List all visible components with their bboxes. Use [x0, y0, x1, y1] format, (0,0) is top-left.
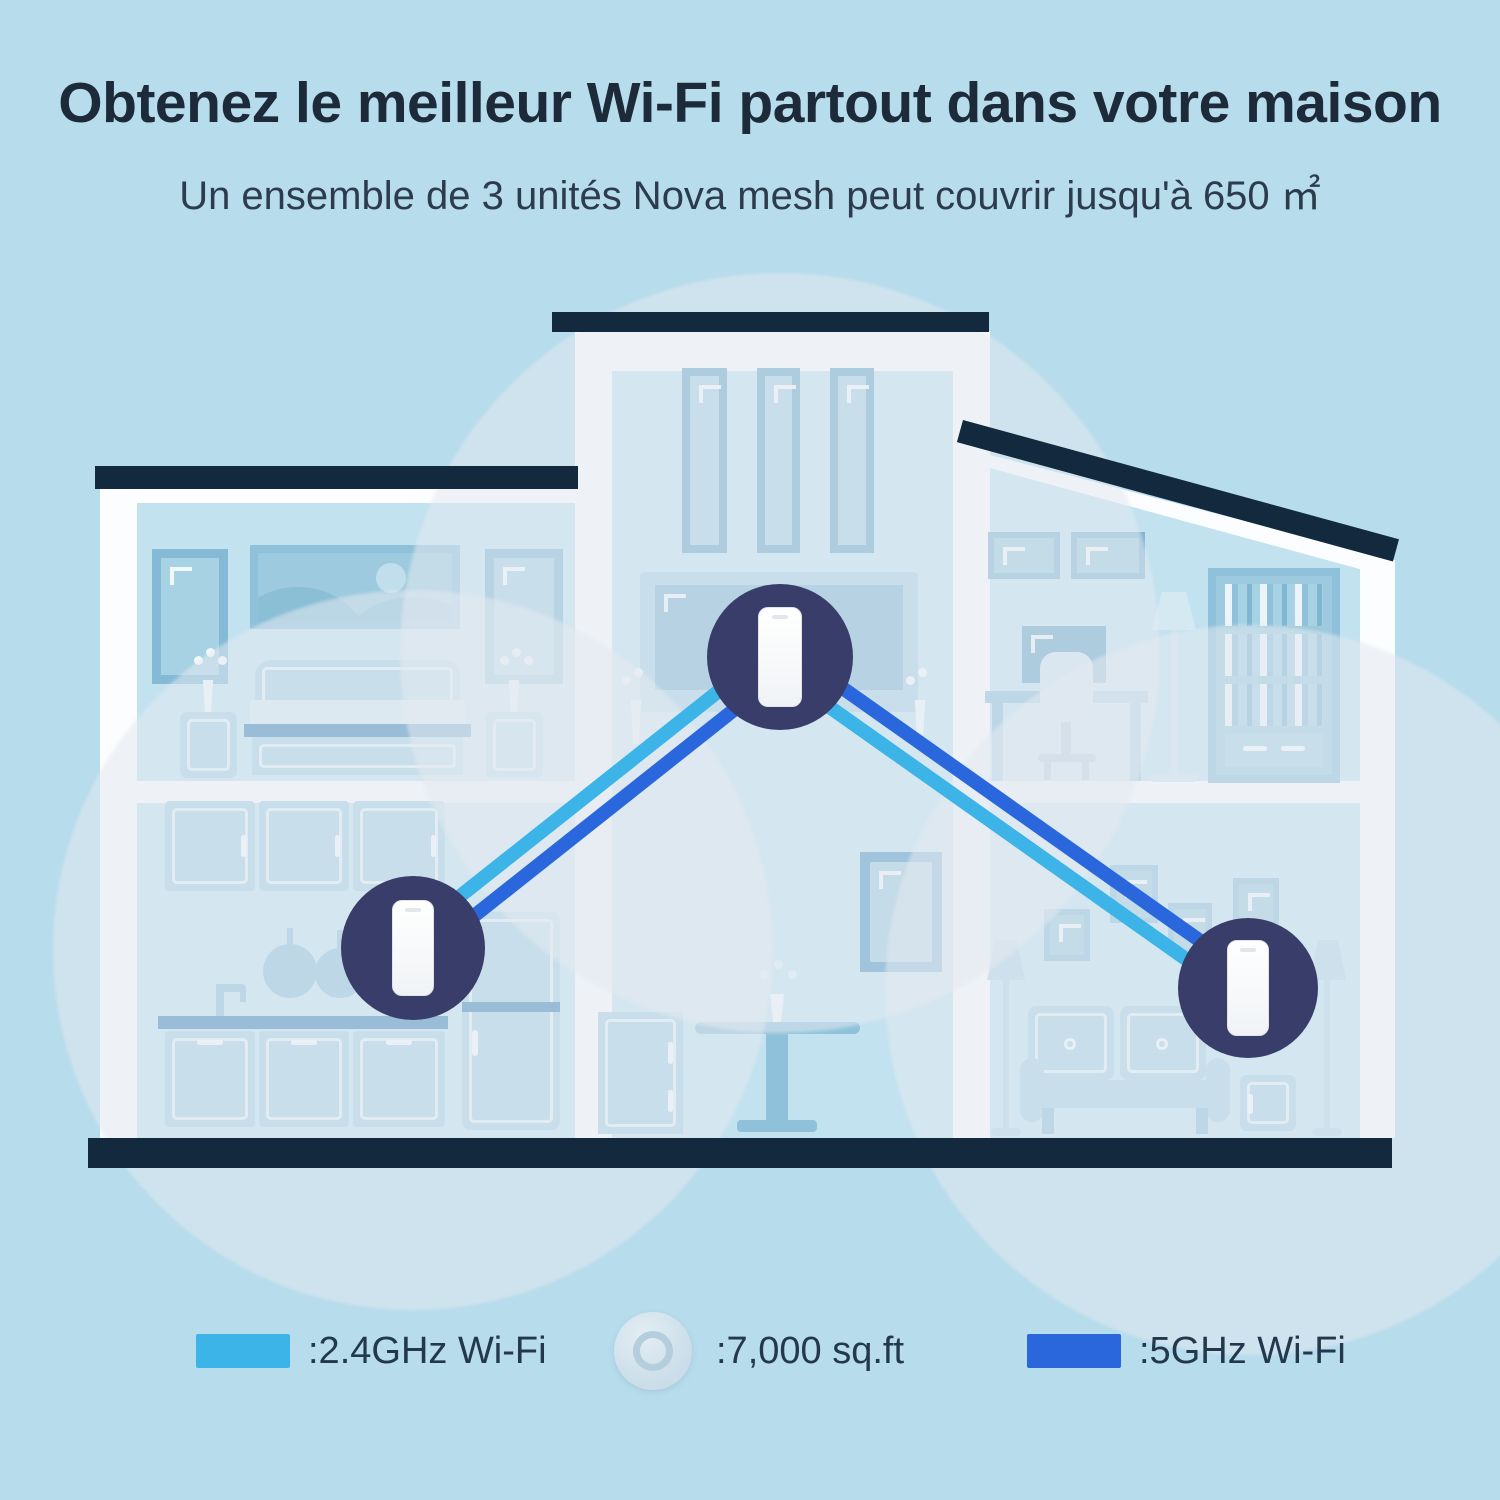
wifi-link-5ghz-right — [786, 648, 1254, 979]
wifi-links — [0, 0, 1500, 1500]
mesh-coverage-illustration: Obtenez le meilleur Wi-Fi partout dans v… — [0, 0, 1500, 1500]
nova-router-center — [758, 607, 802, 707]
legend-label-5ghz: :5GHz Wi-Fi — [1139, 1330, 1346, 1373]
legend-item-24ghz: :2.4GHz Wi-Fi — [196, 1312, 547, 1390]
nova-router-left — [392, 900, 434, 996]
swatch-5ghz — [1027, 1334, 1121, 1368]
coverage-area-icon — [614, 1312, 692, 1390]
swatch-24ghz — [196, 1334, 290, 1368]
nova-router-right — [1227, 940, 1269, 1036]
legend-item-coverage: :7,000 sq.ft — [614, 1312, 904, 1390]
legend-label-24ghz: :2.4GHz Wi-Fi — [308, 1330, 547, 1373]
wifi-link-24ghz-right — [773, 667, 1241, 998]
legend-label-coverage: :7,000 sq.ft — [716, 1330, 904, 1373]
legend-item-5ghz: :5GHz Wi-Fi — [1027, 1312, 1346, 1390]
